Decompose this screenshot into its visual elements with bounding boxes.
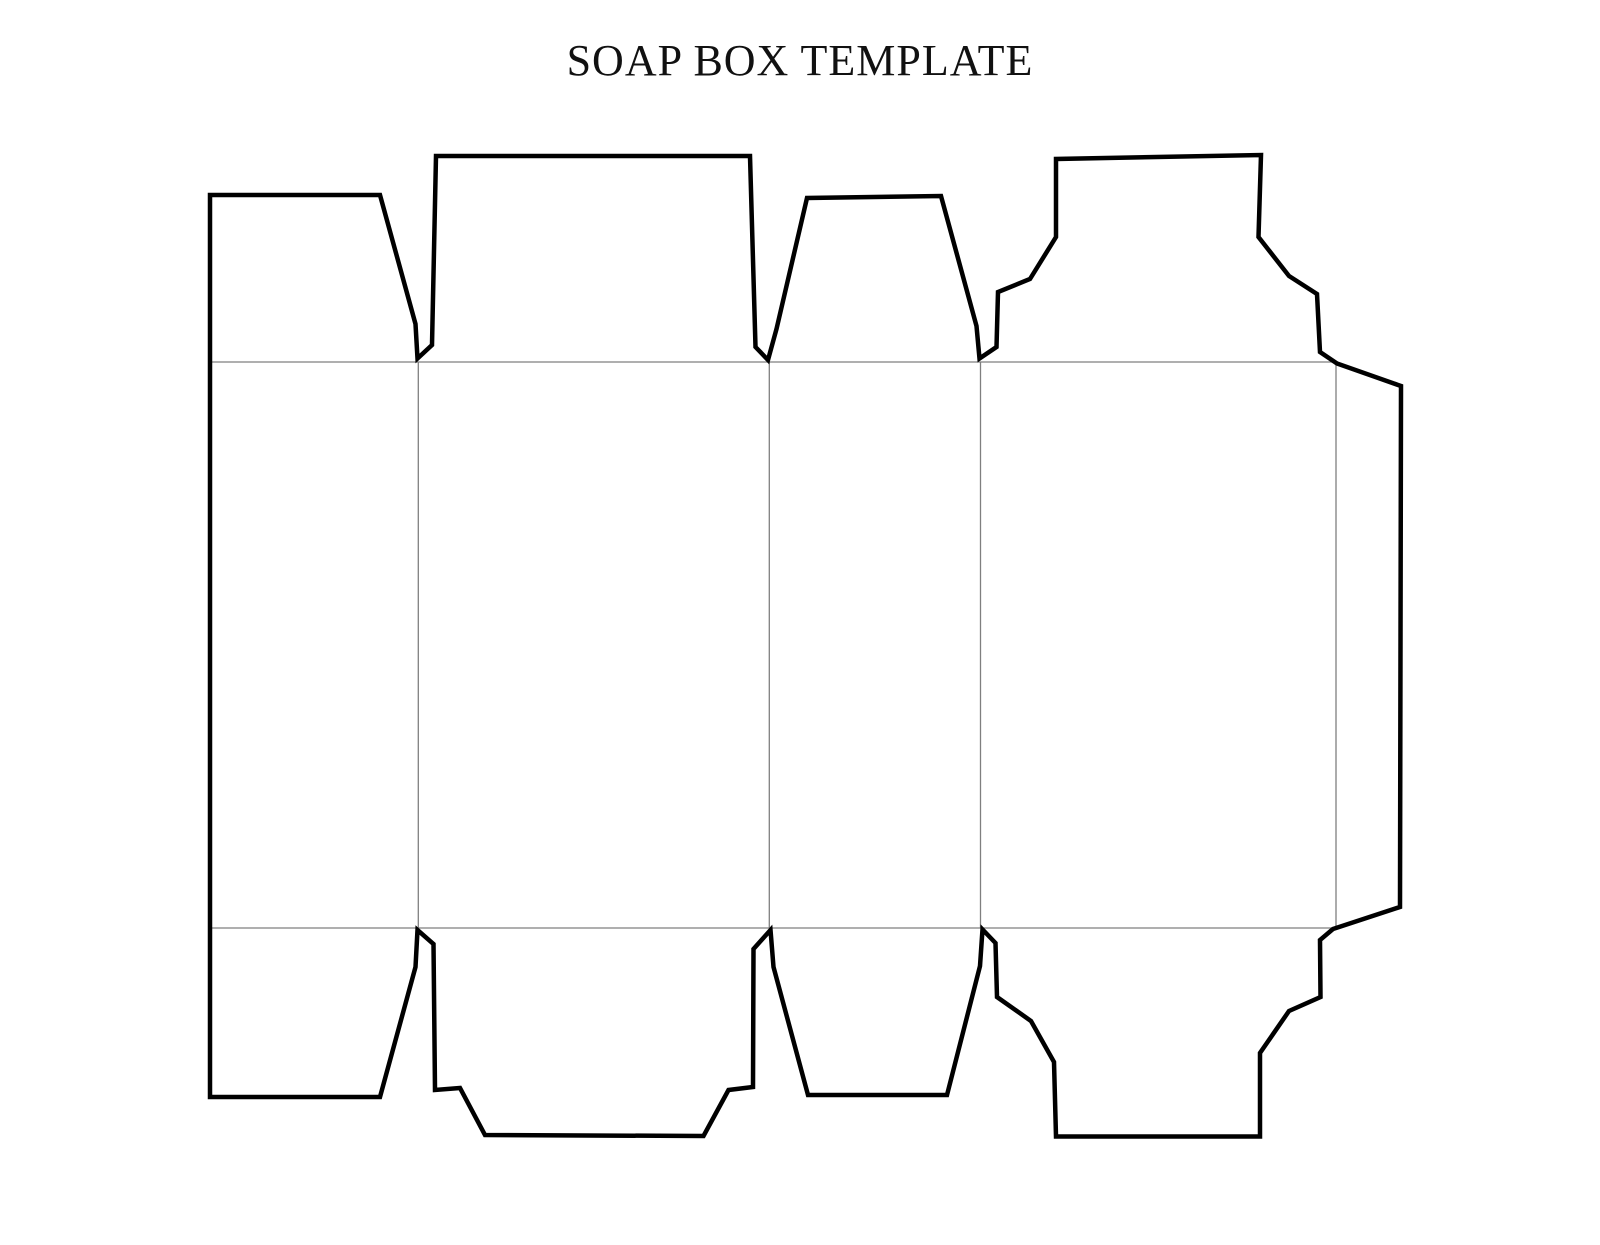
cut-outline xyxy=(210,155,1401,1137)
soap-box-template-diagram xyxy=(0,0,1600,1245)
template-page: SOAP BOX TEMPLATE xyxy=(0,0,1600,1245)
